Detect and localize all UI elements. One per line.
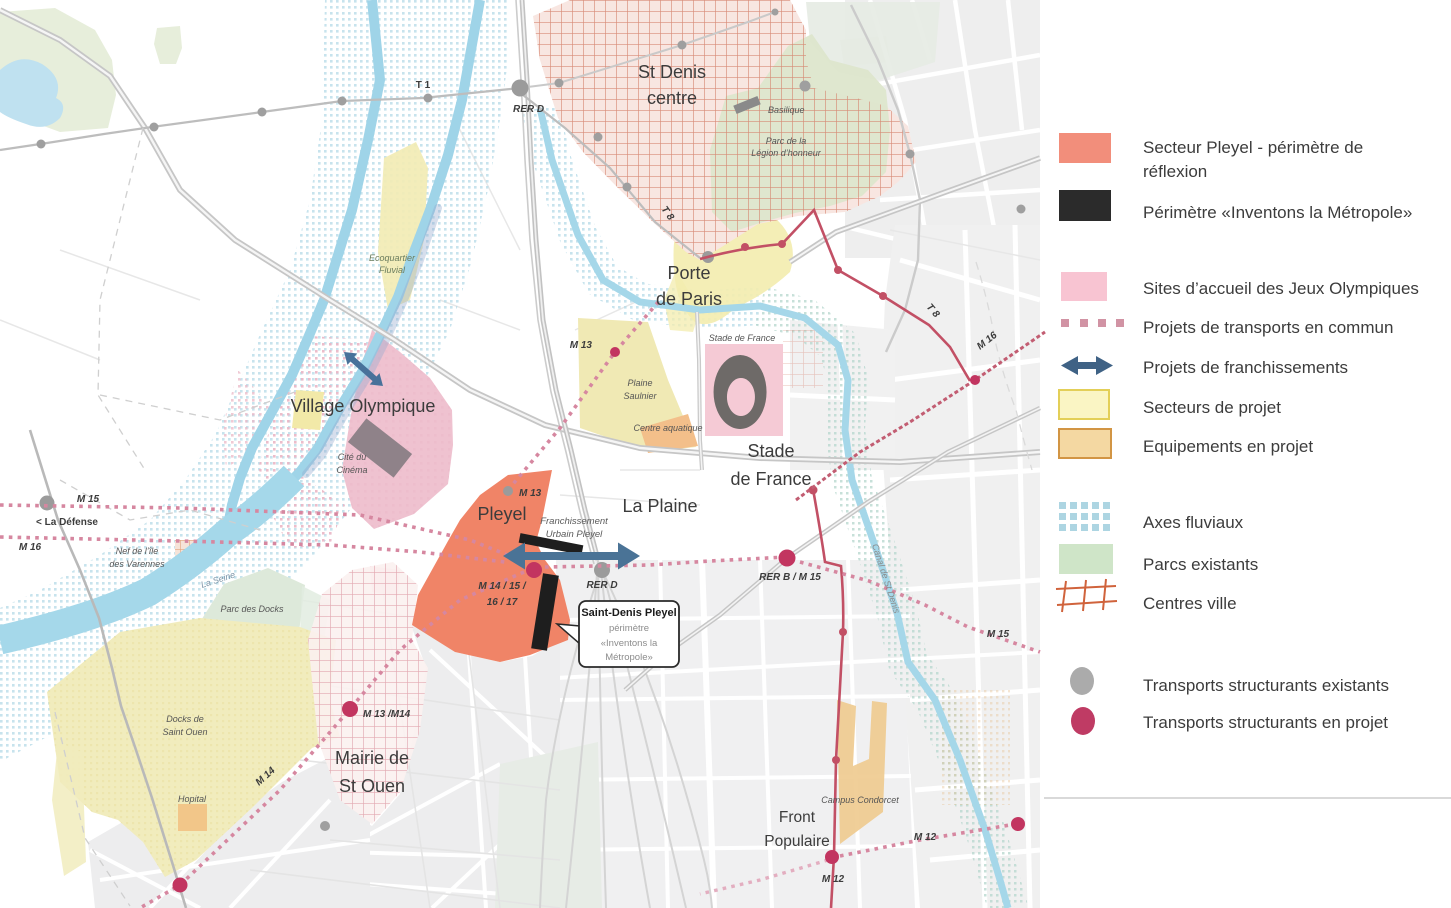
svg-text:Projets de transports en commu: Projets de transports en commun (1143, 318, 1393, 337)
svg-text:Docks de: Docks de (166, 714, 204, 724)
svg-text:Campus Condorcet: Campus Condorcet (821, 795, 899, 805)
svg-text:Sites d’accueil des Jeux Olymp: Sites d’accueil des Jeux Olympiques (1143, 279, 1419, 298)
svg-text:La Plaine: La Plaine (622, 496, 697, 516)
svg-text:Centres ville: Centres ville (1143, 594, 1237, 613)
svg-text:M 14 / 15 /: M 14 / 15 / (478, 581, 526, 592)
svg-text:des Varennes: des Varennes (109, 559, 165, 569)
svg-text:de Paris: de Paris (656, 289, 722, 309)
svg-text:Plaine: Plaine (627, 378, 652, 388)
svg-text:< La Défense: < La Défense (36, 517, 98, 528)
svg-text:Village Olympique: Village Olympique (291, 396, 436, 416)
svg-text:M 15: M 15 (987, 629, 1010, 640)
svg-text:Parc de la: Parc de la (766, 136, 807, 146)
svg-text:RER D: RER D (586, 580, 617, 591)
svg-text:réflexion: réflexion (1143, 162, 1207, 181)
svg-text:M 13: M 13 (519, 488, 542, 499)
svg-text:Front: Front (779, 809, 816, 826)
svg-text:Saint Ouen: Saint Ouen (162, 727, 207, 737)
svg-text:Stade de France: Stade de France (709, 333, 776, 343)
svg-text:centre: centre (647, 88, 697, 108)
svg-text:Franchissement: Franchissement (540, 516, 608, 527)
svg-text:Pleyel: Pleyel (477, 504, 526, 524)
svg-text:Cinéma: Cinéma (336, 465, 367, 475)
svg-text:Axes fluviaux: Axes fluviaux (1143, 513, 1244, 532)
svg-text:RER D: RER D (513, 104, 544, 115)
svg-text:de France: de France (730, 469, 811, 489)
svg-text:M 13: M 13 (570, 340, 593, 351)
svg-text:Equipements en projet: Equipements en projet (1143, 437, 1313, 456)
svg-text:Cité du: Cité du (338, 452, 367, 462)
svg-text:Urbain Pleyel: Urbain Pleyel (546, 529, 603, 540)
svg-text:Mairie de: Mairie de (335, 748, 409, 768)
svg-text:Transports structurants en pro: Transports structurants en projet (1143, 713, 1388, 732)
svg-text:M 13 /M14: M 13 /M14 (363, 709, 411, 720)
svg-text:RER B / M 15: RER B / M 15 (759, 572, 821, 583)
svg-text:T 1: T 1 (416, 80, 431, 91)
svg-text:périmètre: périmètre (609, 623, 649, 634)
svg-text:Projets de franchissements: Projets de franchissements (1143, 358, 1348, 377)
svg-text:Fluvial: Fluvial (379, 265, 406, 275)
svg-text:Saulnier: Saulnier (623, 391, 657, 401)
svg-text:Nef de l’île: Nef de l’île (116, 546, 159, 556)
svg-text:Ecoquartier: Ecoquartier (369, 253, 416, 263)
svg-text:Hopital: Hopital (178, 794, 207, 804)
svg-text:16 / 17: 16 / 17 (487, 597, 518, 608)
svg-text:Légion d’honneur: Légion d’honneur (751, 148, 822, 158)
svg-text:Saint-Denis Pleyel: Saint-Denis Pleyel (581, 607, 676, 619)
svg-text:St Ouen: St Ouen (339, 776, 405, 796)
svg-text:M 15: M 15 (77, 494, 100, 505)
svg-text:Secteurs de projet: Secteurs de projet (1143, 398, 1281, 417)
svg-text:Basilique: Basilique (768, 105, 805, 115)
svg-text:Populaire: Populaire (764, 833, 830, 850)
svg-text:«Inventons la: «Inventons la (601, 638, 658, 649)
svg-text:Centre aquatique: Centre aquatique (633, 423, 702, 433)
svg-text:Métropole»: Métropole» (605, 652, 653, 663)
svg-text:Stade: Stade (747, 441, 794, 461)
svg-text:Parcs existants: Parcs existants (1143, 555, 1258, 574)
svg-text:St Denis: St Denis (638, 62, 706, 82)
svg-text:M 16: M 16 (19, 542, 42, 553)
svg-text:Secteur Pleyel - périmètre de: Secteur Pleyel - périmètre de (1143, 138, 1363, 157)
svg-text:Périmètre «Inventons la Métrop: Périmètre «Inventons la Métropole» (1143, 203, 1412, 222)
svg-text:Porte: Porte (667, 263, 710, 283)
svg-text:M 12: M 12 (822, 874, 845, 885)
svg-text:Parc des Docks: Parc des Docks (220, 604, 284, 614)
svg-text:Transports structurants exista: Transports structurants existants (1143, 676, 1389, 695)
svg-text:M 12: M 12 (914, 832, 937, 843)
